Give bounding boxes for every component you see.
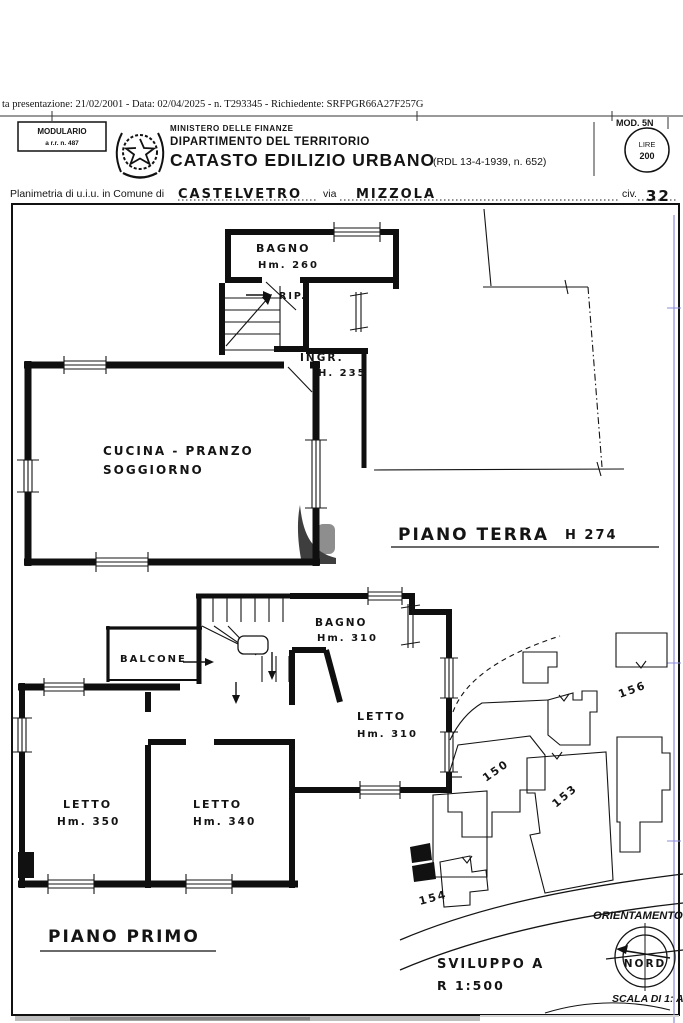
stamp-amount: 200 (639, 151, 654, 161)
first-floor-plan: BAGNO Hm. 310 BALCONE LETTO Hm. 310 LETT… (12, 587, 458, 951)
sviluppo-label: SVILUPPO A (437, 957, 544, 972)
ff-bagno-height: Hm. 310 (317, 633, 378, 644)
mod-label: MOD. 5N (616, 118, 654, 128)
italy-emblem-icon (117, 133, 164, 178)
stamp-lire-label: LIRE (639, 140, 656, 149)
planimetria-prefix: Planimetria di u.i.u. in Comune di (10, 188, 164, 200)
via-value: MIZZOLA (356, 187, 436, 202)
ff-right-block-windows (360, 587, 458, 799)
nord-label: NORD (624, 958, 667, 970)
ff-left-block-walls (18, 683, 298, 888)
catasto-title: CATASTO EDILIZIO URBANO (170, 150, 435, 170)
modulario-box: MODULARIO a r.r. n. 487 (18, 122, 106, 151)
modulario-label: MODULARIO (37, 127, 86, 136)
site-building-filled-2 (412, 862, 436, 882)
gf-bagno-label: BAGNO (256, 242, 310, 255)
catasto-ref: (RDL 13-4-1939, n. 652) (433, 156, 546, 168)
dipartimento-line: DIPARTIMENTO DEL TERRITORIO (170, 136, 370, 148)
site-building-filled-1 (410, 843, 432, 863)
gf-ingr-door-leaf (288, 367, 312, 392)
gf-rip-label: RIP. (279, 291, 307, 302)
civ-label: civ. (622, 188, 637, 200)
gf-cucina-label-1: CUCINA - PRANZO (103, 444, 254, 458)
ff-letto-left-label: LETTO (63, 798, 112, 811)
ff-corner-mass (18, 852, 34, 878)
gf-title-height: H 274 (565, 528, 618, 543)
ff-letto-left-height: Hm. 350 (57, 816, 120, 828)
ground-floor-plan: BAGNO Hm. 260 RIP. INGR. H. 235 CUCINA -… (17, 209, 659, 572)
presentation-line: ta presentazione: 21/02/2001 - Data: 02/… (2, 99, 424, 110)
scala-label: SCALA DI 1: A (612, 993, 683, 1005)
ff-letto-right-height: Hm. 310 (357, 729, 418, 740)
gf-bagno-height: Hm. 260 (258, 260, 319, 271)
ministero-line: MINISTERO DELLE FINANZE (170, 124, 294, 133)
parcel-150-label: 150 (480, 757, 511, 784)
orientamento-label: ORIENTAMENTO (593, 910, 683, 922)
ff-staircase (196, 594, 298, 684)
gf-courtyard-boundary (374, 209, 624, 476)
ff-letto-right-label: LETTO (357, 710, 406, 723)
form-top-rule (0, 111, 683, 121)
parcel-153-label: 153 (550, 782, 581, 811)
gf-cucina-label-2: SOGGIORNO (103, 463, 204, 477)
gf-title: PIANO TERRA (398, 525, 549, 545)
gf-bagno-window (334, 222, 380, 242)
ff-bagno-label: BAGNO (315, 617, 367, 629)
ff-title: PIANO PRIMO (48, 927, 200, 947)
watermark-shape (317, 524, 335, 554)
ff-corridor-arrow (232, 682, 240, 704)
cadastral-document-page: ta presentazione: 21/02/2001 - Data: 02/… (0, 0, 683, 1023)
gf-ingresso-label: INGR. (300, 352, 344, 364)
site-plan: 150 153 154 156 ORIENTAMENTO NORD SCALA … (400, 633, 683, 1013)
gf-staircase (222, 283, 280, 355)
ff-left-block-windows (12, 678, 232, 894)
planimetria-row: Planimetria di u.i.u. in Comune di CASTE… (10, 187, 676, 205)
via-label: via (323, 188, 337, 200)
civ-value: 32 (646, 187, 671, 205)
ff-letto-mid-label: LETTO (193, 798, 242, 811)
modulario-sublabel: a r.r. n. 487 (45, 140, 79, 147)
ff-balcone-label: BALCONE (120, 654, 187, 665)
gf-corridor-window (350, 292, 368, 332)
ff-letto-mid-height: Hm. 340 (193, 816, 256, 828)
lire-stamp: LIRE 200 (625, 128, 669, 172)
drawing-border (12, 204, 679, 1015)
gf-ingresso-height: H. 235 (318, 368, 367, 379)
compass-rose: NORD (606, 923, 683, 991)
parcel-156-label: 156 (617, 679, 649, 701)
gf-bagno-walls (225, 229, 399, 289)
sviluppo-scale: R 1:500 (437, 978, 505, 993)
north-arrow-icon (616, 945, 628, 954)
ministry-heading: MINISTERO DELLE FINANZE DIPARTIMENTO DEL… (170, 124, 546, 170)
